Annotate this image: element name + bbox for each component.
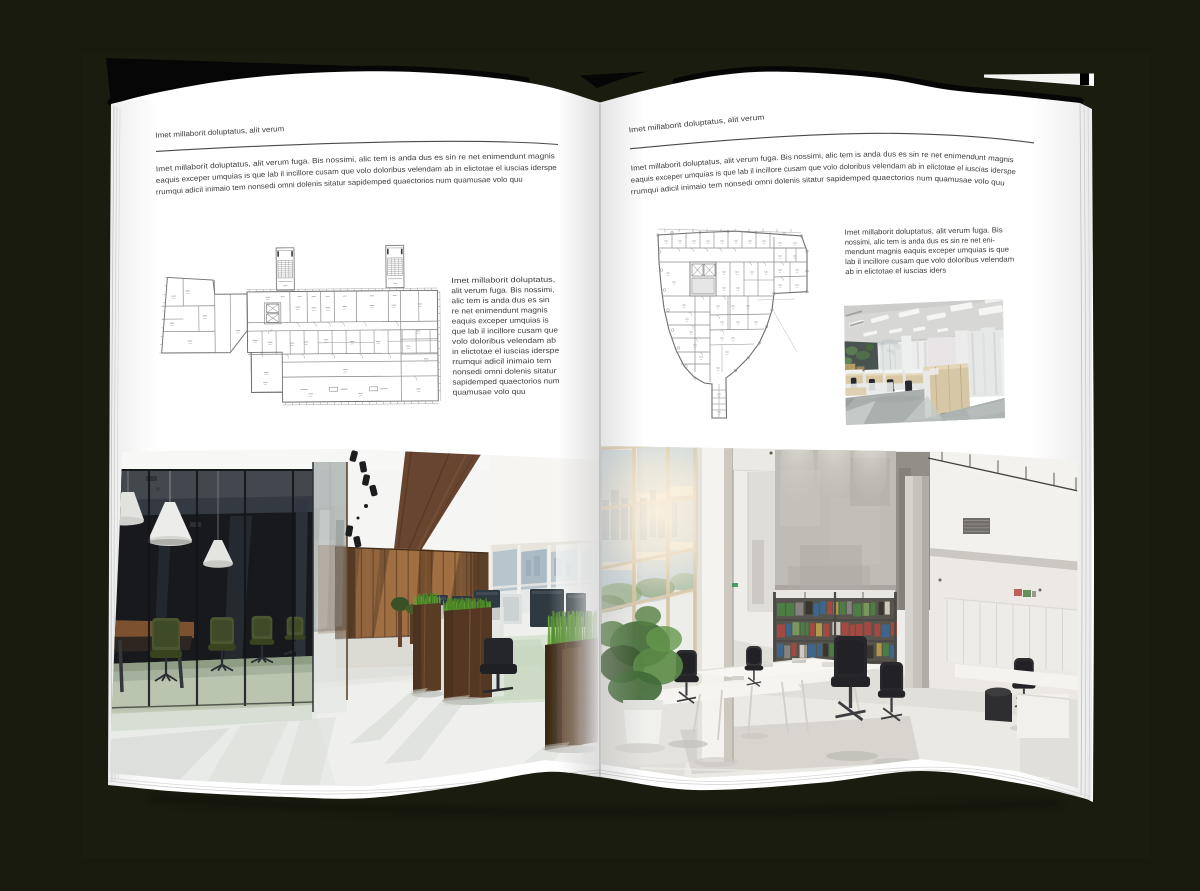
svg-text:ab in elictotae el iuscias ide: ab in elictotae el iuscias iders (845, 266, 946, 277)
svg-text:alit verum fuga. Bis nossimi,: alit verum fuga. Bis nossimi, (451, 285, 554, 295)
svg-text:re net enimendunt magnis: re net enimendunt magnis (452, 305, 548, 315)
svg-text:in elictotae el iuscias idersp: in elictotae el iuscias iderspe (452, 346, 559, 356)
svg-text:nonsedi omni dolenis sitatur: nonsedi omni dolenis sitatur (452, 366, 557, 376)
svg-text:que lab il incillore cusam que: que lab il incillore cusam que (452, 326, 558, 336)
svg-text:eaquis exceper umquias is: eaquis exceper umquias is (452, 315, 549, 325)
svg-text:rrumqui adicil inimaio tem: rrumqui adicil inimaio tem (452, 356, 551, 366)
svg-text:sapidemped quaectorios num: sapidemped quaectorios num (452, 376, 559, 386)
svg-text:quamusae volo quu: quamusae volo quu (453, 387, 526, 397)
svg-text:Imet millaborit doluptatus,: Imet millaborit doluptatus, (451, 275, 555, 285)
svg-text:volo doloribus velendam ab: volo doloribus velendam ab (452, 336, 556, 346)
svg-text:alic tem is anda dus es sin: alic tem is anda dus es sin (451, 295, 549, 305)
